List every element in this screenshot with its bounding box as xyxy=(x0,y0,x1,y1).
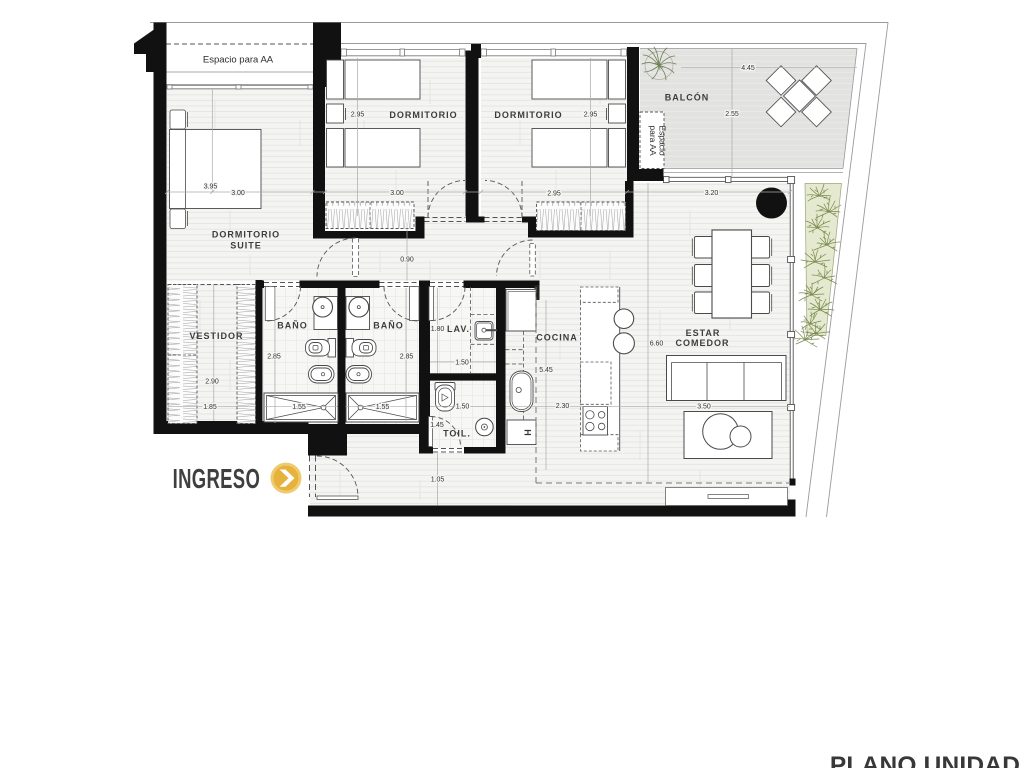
svg-text:3.50: 3.50 xyxy=(697,404,711,411)
svg-text:3.95: 3.95 xyxy=(204,184,218,191)
svg-text:BALCÓN: BALCÓN xyxy=(665,92,710,103)
svg-text:0.90: 0.90 xyxy=(400,256,414,263)
svg-text:2.95: 2.95 xyxy=(351,112,365,119)
svg-text:2.85: 2.85 xyxy=(400,354,414,361)
svg-text:1.85: 1.85 xyxy=(203,404,217,411)
svg-text:1.05: 1.05 xyxy=(431,477,445,484)
svg-text:1.45: 1.45 xyxy=(430,422,444,429)
svg-text:3.00: 3.00 xyxy=(390,190,404,197)
svg-text:H: H xyxy=(523,429,533,436)
svg-text:Espacio: Espacio xyxy=(658,125,668,156)
svg-text:3.20: 3.20 xyxy=(705,190,719,197)
svg-text:BAÑO: BAÑO xyxy=(373,321,404,331)
svg-text:1.50: 1.50 xyxy=(455,359,469,366)
svg-text:COMEDOR: COMEDOR xyxy=(676,338,730,348)
svg-text:para AA: para AA xyxy=(648,125,658,156)
svg-text:1.55: 1.55 xyxy=(292,404,306,411)
svg-text:2.95: 2.95 xyxy=(584,112,598,119)
svg-text:ESTAR: ESTAR xyxy=(686,328,721,338)
svg-text:DORMITORIO: DORMITORIO xyxy=(212,230,280,240)
svg-text:DORMITORIO: DORMITORIO xyxy=(389,110,457,120)
svg-text:INGRESO: INGRESO xyxy=(173,464,261,495)
svg-text:BAÑO: BAÑO xyxy=(277,321,308,331)
svg-text:TOIL.: TOIL. xyxy=(443,429,471,439)
svg-text:COCINA: COCINA xyxy=(536,333,578,343)
svg-text:6.60: 6.60 xyxy=(650,341,664,348)
svg-text:2.95: 2.95 xyxy=(547,190,561,197)
svg-text:1.55: 1.55 xyxy=(376,404,390,411)
svg-text:1.80: 1.80 xyxy=(431,326,445,333)
svg-text:SUITE: SUITE xyxy=(230,241,262,251)
svg-text:VESTIDOR: VESTIDOR xyxy=(189,331,243,341)
svg-text:LAV.: LAV. xyxy=(447,324,470,334)
svg-text:Espacio para AA: Espacio para AA xyxy=(203,55,274,66)
svg-text:5.45: 5.45 xyxy=(539,367,553,374)
svg-text:2.90: 2.90 xyxy=(205,379,219,386)
svg-text:3.00: 3.00 xyxy=(231,190,245,197)
svg-text:4.45: 4.45 xyxy=(741,65,755,72)
svg-text:2.30: 2.30 xyxy=(556,403,570,410)
svg-text:PLANO UNIDAD: PLANO UNIDAD xyxy=(830,752,1020,768)
svg-text:2.55: 2.55 xyxy=(725,111,739,118)
svg-text:1.50: 1.50 xyxy=(456,403,470,410)
svg-text:DORMITORIO: DORMITORIO xyxy=(494,110,562,120)
svg-text:2.85: 2.85 xyxy=(267,354,281,361)
